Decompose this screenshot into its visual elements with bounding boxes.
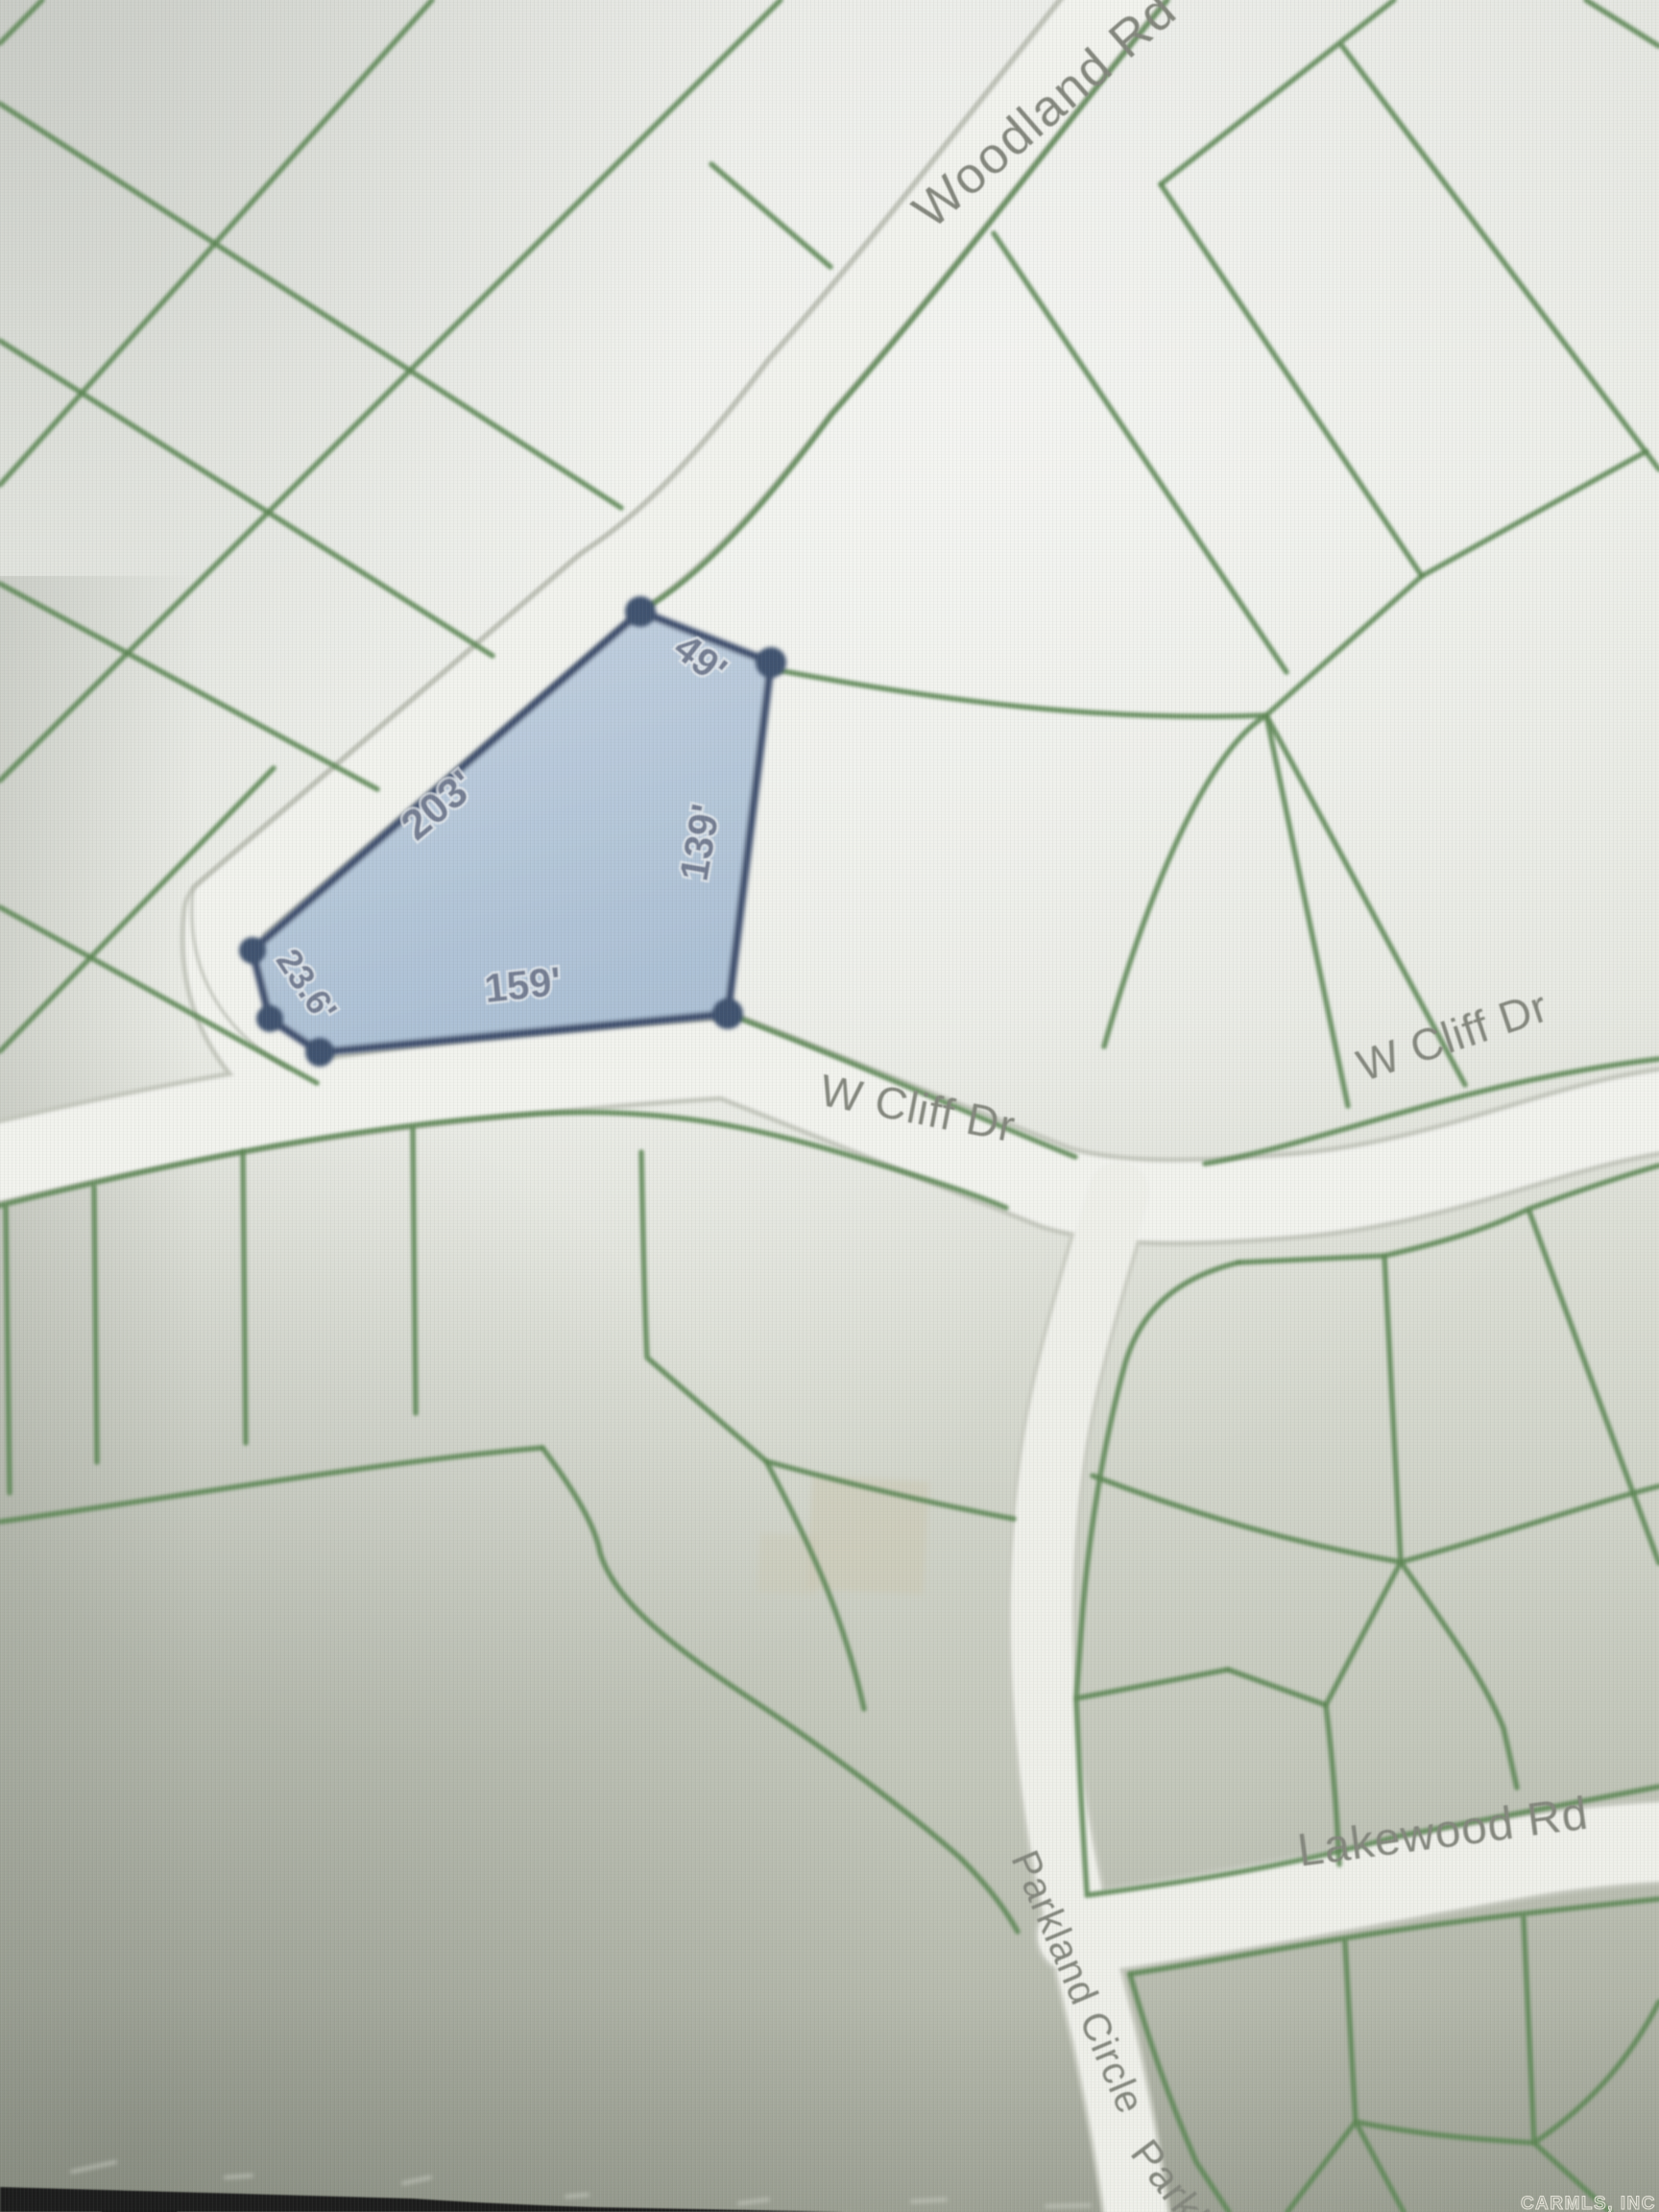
svg-text:159': 159' bbox=[482, 958, 564, 1011]
svg-text:CARMLS, INC: CARMLS, INC bbox=[1521, 2194, 1656, 2212]
